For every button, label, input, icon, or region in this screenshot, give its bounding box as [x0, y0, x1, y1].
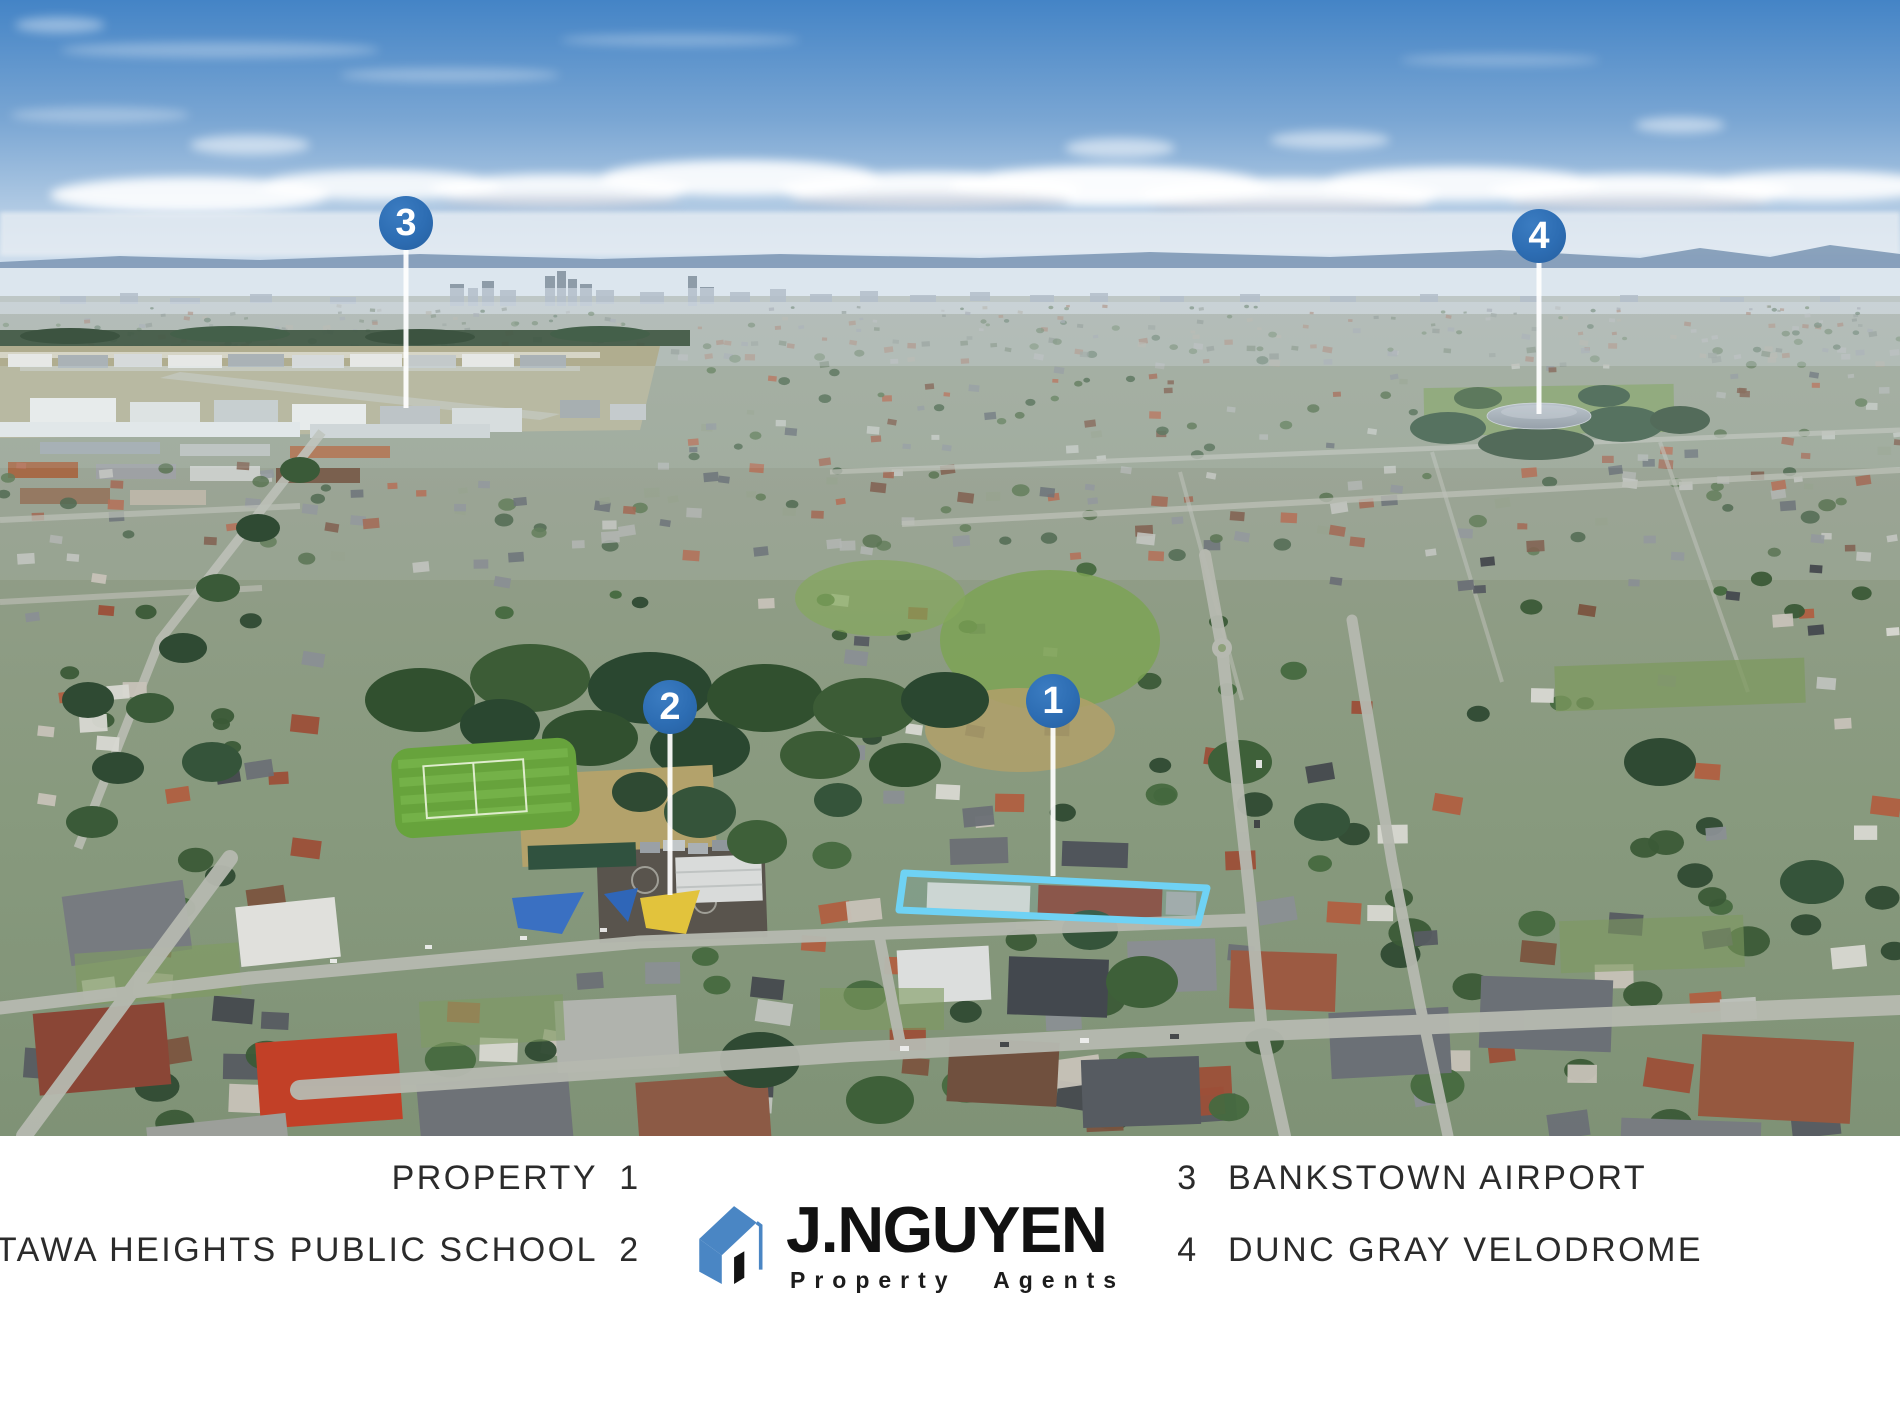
legend-number-airport: 3 [1156, 1159, 1220, 1198]
aerial-scene [0, 0, 1900, 1136]
marker-1: 1 [1026, 674, 1080, 728]
legend-label-property: PROPERTY [392, 1159, 598, 1198]
logo-tagline: Property Agents [790, 1269, 1125, 1292]
legend-label-school: ATTAWA HEIGHTS PUBLIC SCHOOL [0, 1231, 598, 1270]
aerial-photo: 1 2 3 4 [0, 0, 1900, 1136]
legend-number-school: 2 [598, 1231, 662, 1270]
legend-number-velodrome: 4 [1156, 1231, 1220, 1270]
marker-2: 2 [643, 680, 697, 734]
logo-name: J.NGUYEN [786, 1197, 1106, 1262]
legend-label-velodrome: DUNC GRAY VELODROME [1228, 1231, 1703, 1270]
legend-right: 3 BANKSTOWN AIRPORT 4 DUNC GRAY VELODROM… [1156, 1142, 1703, 1286]
legend-row-velodrome: 4 DUNC GRAY VELODROME [1156, 1214, 1703, 1286]
legend-row-property: PROPERTY 1 [0, 1142, 662, 1214]
legend-row-school: ATTAWA HEIGHTS PUBLIC SCHOOL 2 [0, 1214, 662, 1286]
haze-2 [0, 366, 1900, 468]
legend-left: PROPERTY 1 ATTAWA HEIGHTS PUBLIC SCHOOL … [0, 1142, 662, 1286]
legend-label-airport: BANKSTOWN AIRPORT [1228, 1159, 1647, 1198]
marketing-flyer: 1 2 3 4 PROPERTY 1 ATTAWA HEIGHTS PUBLIC… [0, 0, 1900, 1425]
legend-row-airport: 3 BANKSTOWN AIRPORT [1156, 1142, 1703, 1214]
horizon-haze-band [0, 212, 1900, 256]
school-building [528, 842, 637, 870]
logo-house-icon [693, 1200, 769, 1286]
marker-4: 4 [1512, 209, 1566, 263]
marker-3: 3 [379, 196, 433, 250]
legend-number-property: 1 [598, 1159, 662, 1198]
haze-3 [0, 468, 1900, 580]
